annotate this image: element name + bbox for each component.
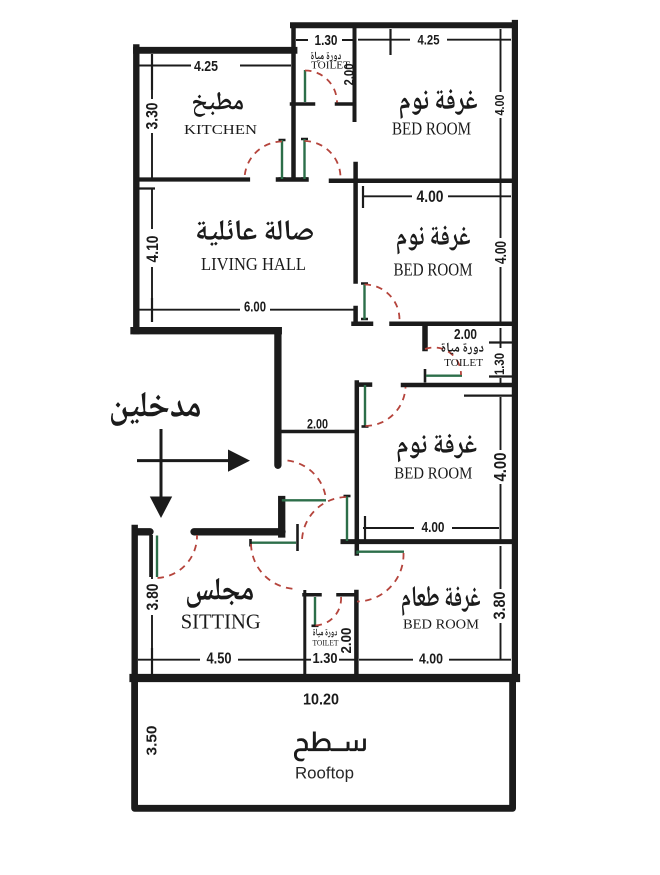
svg-text:4.00: 4.00 xyxy=(492,95,507,116)
svg-text:3.30: 3.30 xyxy=(143,103,161,130)
svg-text:6.00: 6.00 xyxy=(244,300,266,316)
svg-text:4.25: 4.25 xyxy=(418,32,440,48)
svg-text:BED ROOM: BED ROOM xyxy=(403,617,480,632)
svg-text:4.00: 4.00 xyxy=(422,520,445,536)
svg-text:2.00: 2.00 xyxy=(307,415,328,431)
svg-text:1.30: 1.30 xyxy=(313,651,338,667)
svg-text:4.50: 4.50 xyxy=(207,651,232,668)
svg-text:LIVING HALL: LIVING HALL xyxy=(201,254,306,274)
svg-text:4.10: 4.10 xyxy=(144,236,162,263)
svg-text:TOILET: TOILET xyxy=(311,60,350,71)
svg-text:3.80: 3.80 xyxy=(490,592,509,620)
svg-text:2.00: 2.00 xyxy=(454,327,477,343)
svg-text:10.20: 10.20 xyxy=(303,692,339,709)
svg-text:4.00: 4.00 xyxy=(490,452,510,481)
svg-text:BED ROOM: BED ROOM xyxy=(394,464,472,483)
svg-text:1.30: 1.30 xyxy=(491,353,507,375)
svg-text:2.00: 2.00 xyxy=(338,628,355,654)
svg-text:3.50: 3.50 xyxy=(143,726,160,756)
svg-text:SITTING: SITTING xyxy=(181,610,261,634)
svg-text:BED ROOM: BED ROOM xyxy=(394,259,473,279)
svg-text:KITCHEN: KITCHEN xyxy=(184,123,257,138)
svg-text:4.00: 4.00 xyxy=(417,188,444,206)
svg-text:1.30: 1.30 xyxy=(315,33,338,49)
svg-text:4.00: 4.00 xyxy=(419,650,443,667)
svg-text:TOILET: TOILET xyxy=(444,358,484,369)
svg-text:BED ROOM: BED ROOM xyxy=(392,118,471,138)
svg-text:Rooftop: Rooftop xyxy=(295,764,354,783)
svg-text:TOILET: TOILET xyxy=(313,639,339,648)
svg-text:4.00: 4.00 xyxy=(493,241,510,264)
svg-text:3.80: 3.80 xyxy=(144,584,162,611)
svg-text:4.25: 4.25 xyxy=(194,58,218,75)
